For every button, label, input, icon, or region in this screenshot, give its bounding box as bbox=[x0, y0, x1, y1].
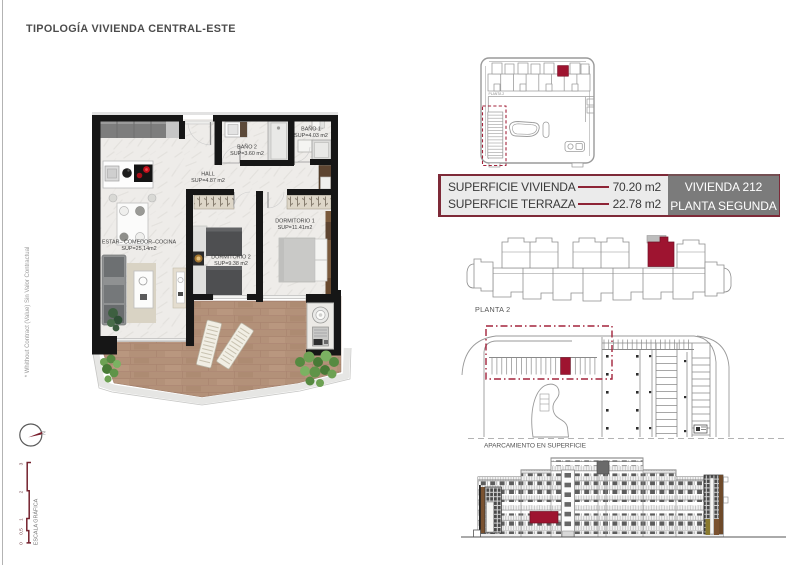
svg-text:0,5: 0,5 bbox=[19, 528, 25, 535]
svg-text:SUP=4.87 m2: SUP=4.87 m2 bbox=[191, 178, 225, 184]
svg-text:N: N bbox=[42, 431, 48, 435]
svg-text:PLANTA 2: PLANTA 2 bbox=[475, 305, 510, 314]
svg-text:BAÑO 1: BAÑO 1 bbox=[301, 126, 321, 133]
svg-text:APARCAMIENTO EN SUPERFICIE: APARCAMIENTO EN SUPERFICIE bbox=[484, 443, 587, 450]
svg-text:SUP=9.38 m2: SUP=9.38 m2 bbox=[214, 261, 248, 267]
svg-text:BAÑO 2: BAÑO 2 bbox=[237, 144, 257, 151]
svg-text:DORMITORIO 1: DORMITORIO 1 bbox=[275, 219, 314, 225]
svg-text:3: 3 bbox=[19, 462, 25, 465]
svg-text:HALL: HALL bbox=[201, 172, 215, 178]
svg-text:ESCALA GRÁFICA: ESCALA GRÁFICA bbox=[33, 498, 40, 545]
svg-text:2: 2 bbox=[19, 490, 25, 493]
svg-text:0: 0 bbox=[19, 542, 25, 545]
svg-text:SUP=25,14m2: SUP=25,14m2 bbox=[121, 246, 156, 252]
svg-text:DORMITORIO 2: DORMITORIO 2 bbox=[211, 255, 250, 261]
svg-text:ESTAR– COMEDOR–COCINA: ESTAR– COMEDOR–COCINA bbox=[102, 240, 177, 246]
svg-text:SUP=11.41m2: SUP=11.41m2 bbox=[278, 225, 313, 231]
svg-text:SUP=4.03 m2: SUP=4.03 m2 bbox=[294, 133, 328, 139]
svg-text:1: 1 bbox=[19, 518, 25, 521]
svg-text:PLANTA 2: PLANTA 2 bbox=[489, 92, 505, 96]
svg-text:SUP=3.60 m2: SUP=3.60 m2 bbox=[230, 151, 264, 157]
